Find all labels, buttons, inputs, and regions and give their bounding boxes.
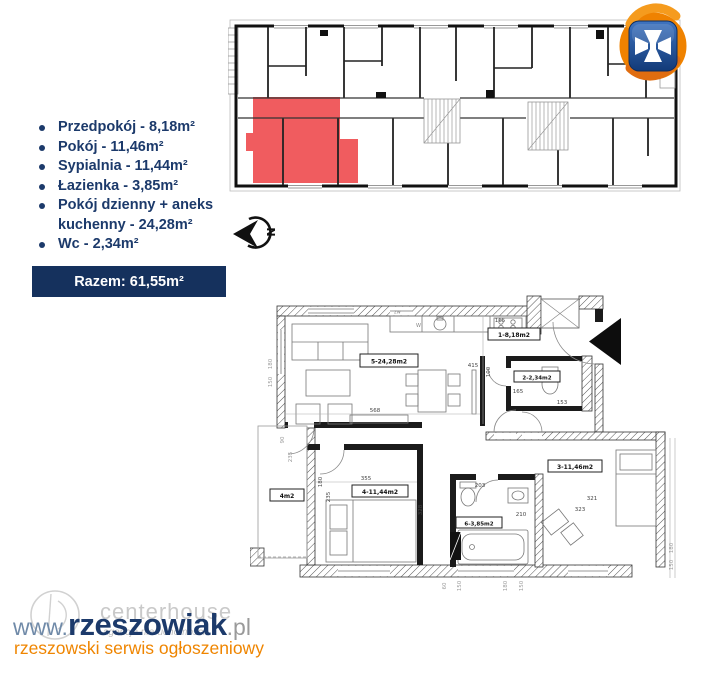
dim-left-b: 150 — [268, 376, 274, 387]
shaft-closet — [541, 299, 579, 328]
dim-balcony-a: 90 — [280, 436, 286, 443]
room-list-item: Pokój - 11,46m² — [30, 138, 216, 158]
label-room: 3-11,46m2 — [557, 464, 593, 471]
url-www: www. — [13, 614, 68, 640]
dim-wc-door: 100 — [486, 366, 492, 377]
site-tagline: rzeszowski serwis ogłoszeniowy — [14, 638, 264, 659]
dim-living-height: 415 — [468, 363, 479, 369]
dim-left-a: 180 — [268, 358, 274, 369]
staircase-1 — [424, 99, 460, 143]
dim-bottom-b: 150 — [457, 580, 463, 591]
room-list-item: Łazienka - 3,85m² — [30, 177, 216, 197]
dim-bottom-a: 60 — [442, 582, 448, 589]
dim-bedroom-door-a: 180 — [318, 476, 324, 487]
entrance-arrow-icon — [589, 318, 621, 365]
dim-room-b: 323 — [575, 507, 586, 513]
highlighted-unit — [246, 97, 358, 183]
staircase-2 — [528, 102, 568, 150]
rzeszowiak-logo — [612, 2, 694, 88]
label-wc: 2-2,34m2 — [522, 376, 551, 382]
dim-room-a: 321 — [587, 496, 598, 502]
total-area-label: Razem: 61,55m² — [74, 274, 184, 290]
dim-living-width: 568 — [370, 408, 381, 414]
room-list-item: Przedpokój - 8,18m² — [30, 118, 216, 138]
dim-bedroom-width: 355 — [361, 476, 372, 482]
dim-right-b: 150 — [669, 559, 675, 570]
dim-bottom-c: 180 — [503, 580, 509, 591]
dim-hall-door: 165 — [495, 318, 506, 324]
room-list-item: Sypialnia - 11,44m² — [30, 157, 216, 177]
room-list-item: Pokój dzienny + aneks kuchenny - 24,28m² — [30, 196, 216, 235]
dim-bath-height: 210 — [516, 512, 527, 518]
duct-shaft — [450, 532, 461, 560]
label-hall: 1-8,18m2 — [498, 332, 530, 339]
dim-right-a: 180 — [669, 542, 675, 553]
url-brand: rzeszowiak — [68, 607, 227, 642]
url-tld: .pl — [227, 614, 251, 640]
dim-bedroom-height: 328 — [418, 504, 424, 515]
north-letter: N — [264, 227, 277, 236]
fixture-w-label: W — [416, 323, 421, 329]
shafts — [320, 30, 604, 98]
north-arrow: N — [230, 208, 282, 256]
label-living-room: 5-24,28m2 — [371, 359, 407, 366]
north-dart-icon — [233, 220, 258, 248]
listing-image: Przedpokój - 8,18m² Pokój - 11,46m² Sypi… — [0, 0, 702, 675]
apartment-plan: 568 415 165 100 165 153 355 328 180 235 … — [250, 268, 702, 598]
dim-wc-width: 165 — [513, 389, 524, 395]
label-balcony: 4m2 — [280, 493, 295, 500]
label-bathroom: 6-3,85m2 — [464, 522, 493, 528]
dim-wc-depth: 153 — [557, 400, 568, 406]
fixture-zw-label: zw — [394, 310, 401, 316]
total-area-box: Razem: 61,55m² — [32, 266, 226, 297]
room-list: Przedpokój - 8,18m² Pokój - 11,46m² Sypi… — [30, 118, 216, 255]
dim-bottom-d: 150 — [519, 580, 525, 591]
label-bedroom: 4-11,44m2 — [362, 489, 398, 496]
dim-bath-width: 203 — [475, 483, 486, 489]
watermark: centerhouse agencja nieruchomości www.rz… — [0, 585, 420, 675]
room-list-item: Wc - 2,34m² — [30, 235, 216, 255]
dim-balcony-b: 235 — [288, 451, 294, 462]
dim-bedroom-door-b: 235 — [326, 491, 332, 502]
